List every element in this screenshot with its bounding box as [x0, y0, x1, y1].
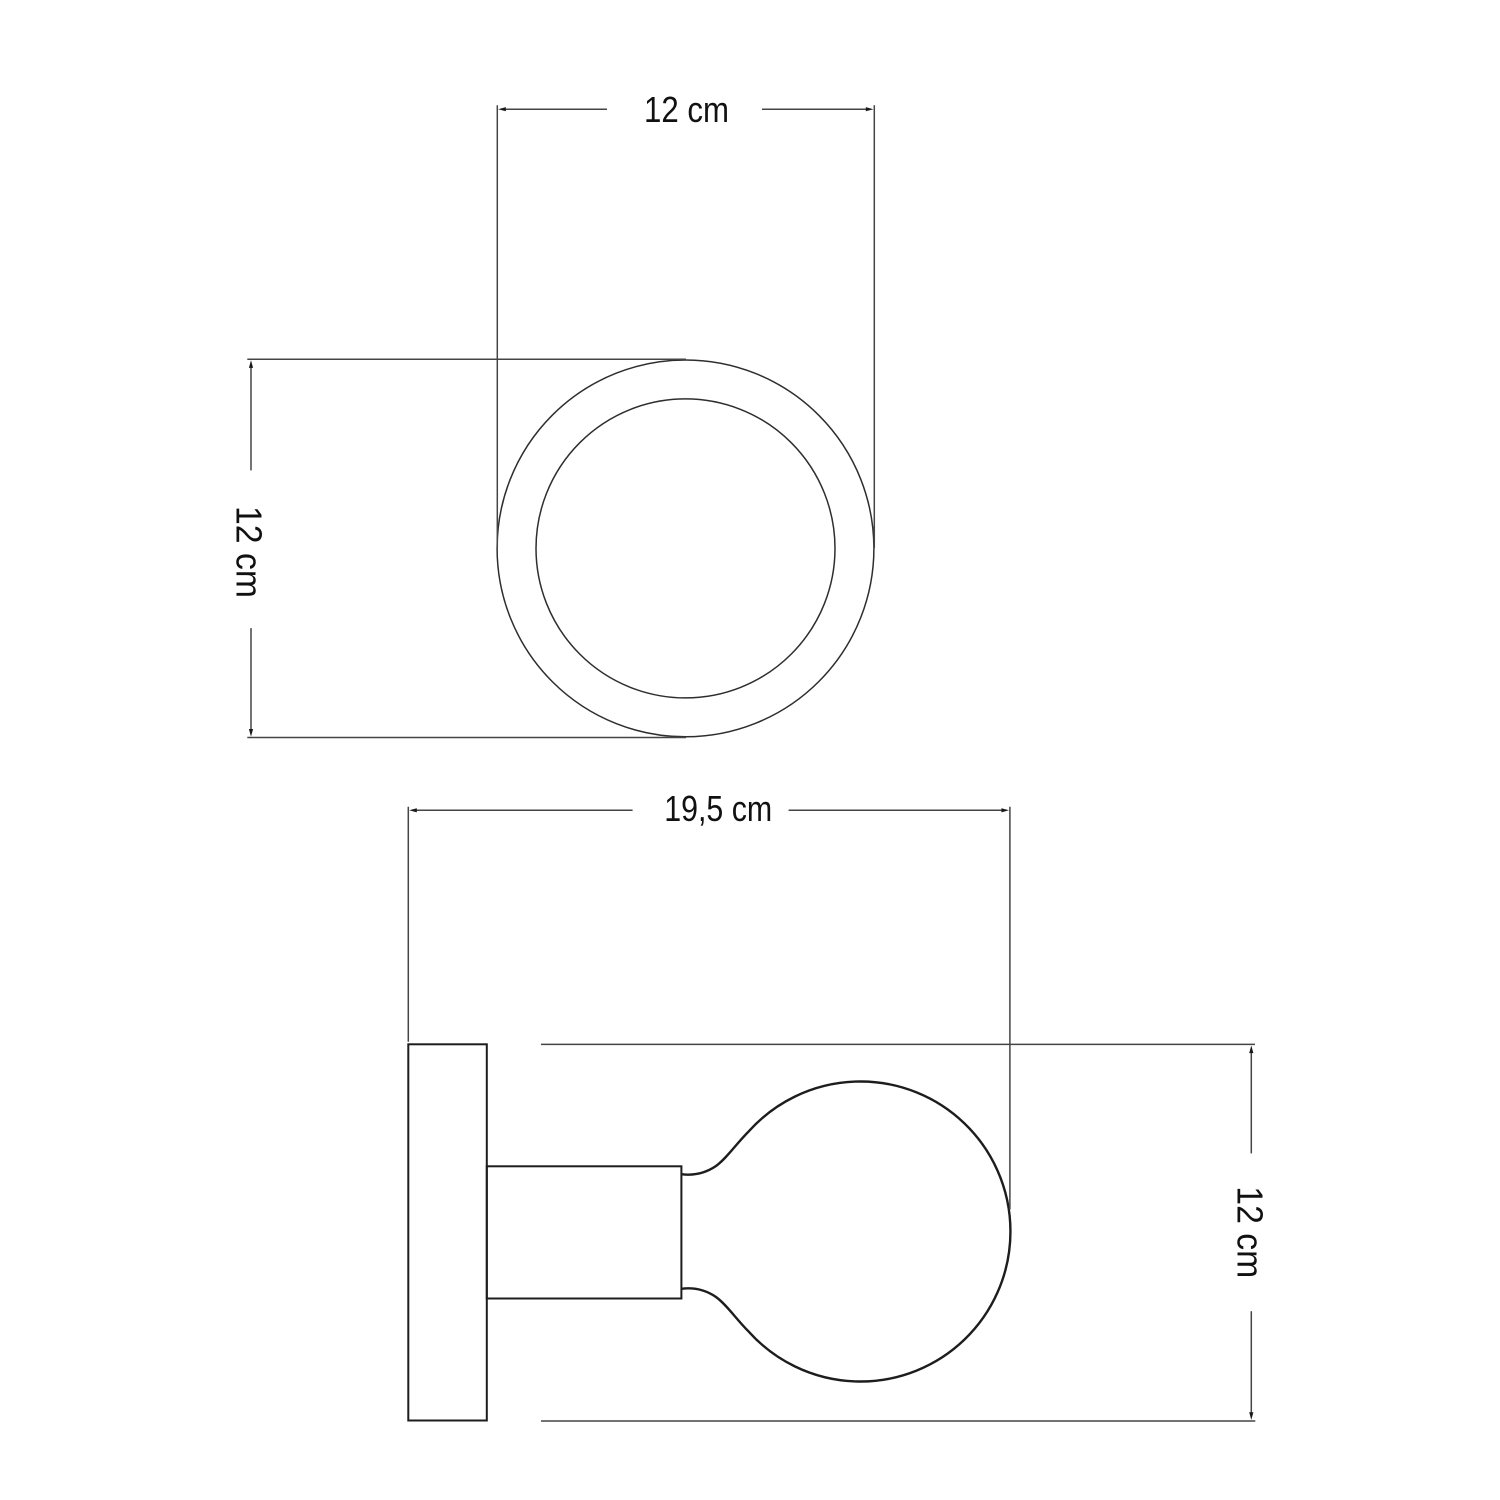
svg-text:12 cm: 12 cm: [1230, 1186, 1271, 1278]
svg-text:19,5 cm: 19,5 cm: [664, 788, 772, 829]
svg-text:12 cm: 12 cm: [644, 89, 729, 130]
svg-text:12 cm: 12 cm: [229, 506, 270, 598]
